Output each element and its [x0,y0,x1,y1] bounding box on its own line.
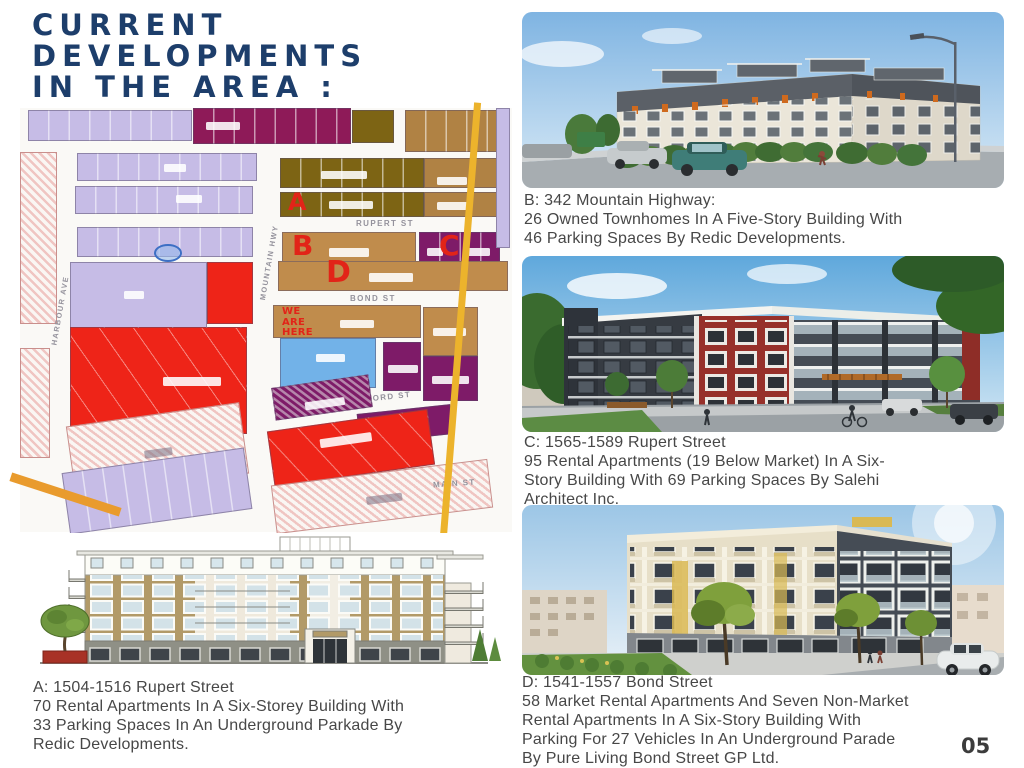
page-title: CURRENT DEVELOPMENTS IN THE AREA : [32,10,367,103]
listing-b-photo [522,12,1004,188]
street-label-rupert: RUPERT ST [356,219,414,228]
zoning-map: A RUPERT ST B C D BOND ST WE ARE HERE OX… [20,108,512,532]
page-number: 05 [961,734,990,758]
zone-label-chip [432,376,469,384]
map-marker-d: D [326,258,351,288]
map-marker-b: B [292,232,313,260]
zone-label-chip [437,177,467,185]
map-parcel [20,348,50,458]
zone-label-chip [319,432,372,448]
listing-b-caption: B: 342 Mountain Highway: 26 Owned Townho… [524,191,1002,248]
listing-d-caption: D: 1541-1557 Bond Street 58 Market Renta… [522,673,1012,768]
rendering-b [522,12,1004,188]
map-parcel [75,186,253,214]
zone-label-chip [329,201,373,209]
map-parcel [70,262,207,329]
zone-label-chip [468,248,490,256]
rendering-c [522,256,1004,432]
zone-label-chip [388,365,418,373]
zone-label-chip [305,397,346,410]
map-marker-c: C [439,232,460,260]
map-parcel [405,110,500,152]
zone-label-chip [316,354,345,362]
zone-label-chip [340,320,374,328]
listing-a-elevation [25,533,503,675]
map-parcel [77,227,253,257]
map-parcel [278,261,508,291]
street-label-bond: BOND ST [350,294,396,303]
map-parcel [193,108,351,144]
zone-label-chip [124,291,144,299]
map-parcel [352,110,394,143]
map-parcel [280,158,424,188]
we-are-here-label: WE ARE HERE [282,307,313,339]
zone-label-chip [369,273,413,282]
zone-label-chip [206,122,240,130]
zone-label-chip [176,195,202,203]
zone-label-chip [164,164,186,172]
elevation-drawing [25,533,503,675]
map-marker-a: A [288,190,307,214]
map-parcel [424,192,500,217]
slide: CURRENT DEVELOPMENTS IN THE AREA : [0,0,1024,768]
listing-c-caption: C: 1565-1589 Rupert Street 95 Rental Apa… [524,433,1006,509]
rendering-d [522,505,1004,675]
map-parcel [423,307,478,356]
listing-c-photo [522,256,1004,432]
zone-label-chip [163,377,221,386]
listing-a-caption: A: 1504-1516 Rupert Street 70 Rental Apa… [33,678,511,754]
map-parcel [424,158,500,188]
zone-label-chip [437,202,469,210]
listing-d-photo [522,505,1004,675]
zone-label-chip [366,493,403,505]
map-parcel [207,262,253,324]
map-parcel [77,153,257,181]
map-parcel [383,342,421,391]
map-parcel [20,152,57,324]
map-parcel [496,108,510,248]
map-symbol [154,244,182,262]
map-parcel [28,110,192,141]
zone-label-chip [321,171,367,179]
